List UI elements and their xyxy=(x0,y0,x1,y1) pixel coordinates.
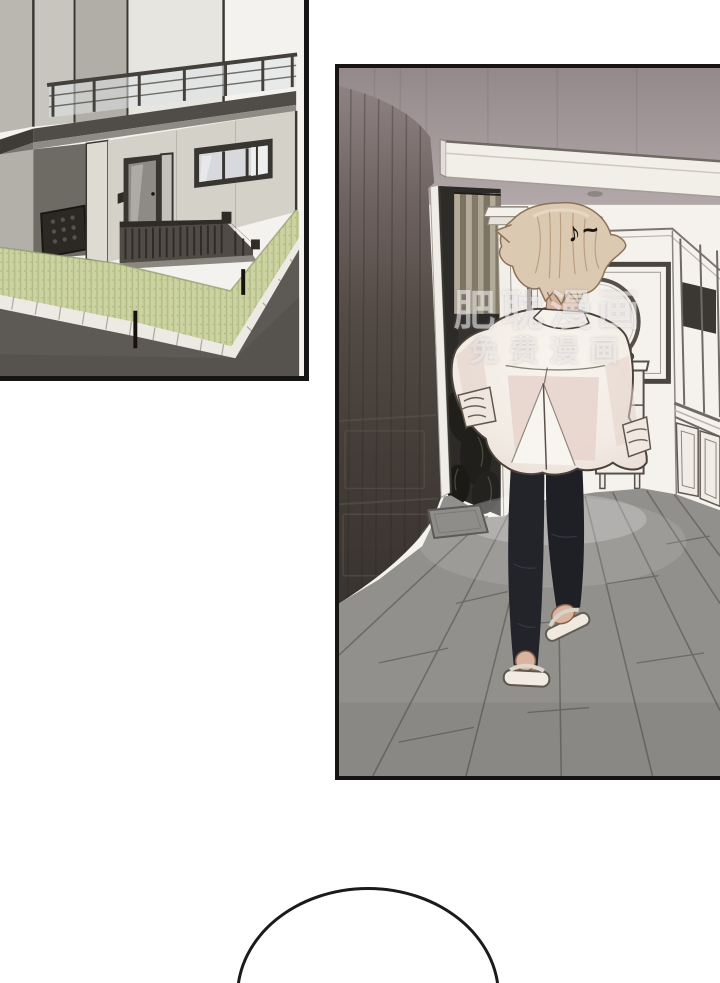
comic-page: ♪~ 肥耽漫画 免费漫画 xyxy=(0,0,720,983)
music-note: ♪~ xyxy=(565,214,602,249)
building-exterior-illustration xyxy=(0,0,304,376)
panel-hallway-scene: ♪~ 肥耽漫画 免费漫画 xyxy=(335,64,720,780)
speech-bubble xyxy=(236,887,500,983)
hallway-illustration xyxy=(339,68,720,776)
panel-building-exterior xyxy=(0,0,309,381)
